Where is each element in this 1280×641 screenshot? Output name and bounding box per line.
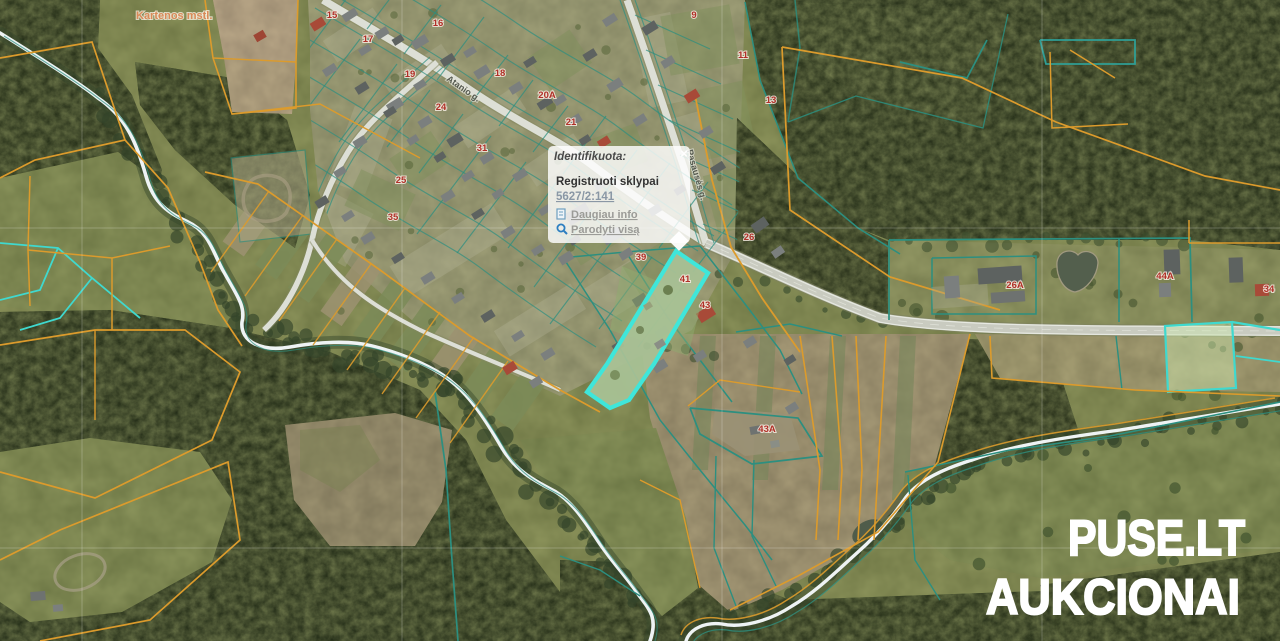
svg-text:11: 11 bbox=[738, 50, 749, 61]
svg-text:20A: 20A bbox=[538, 90, 556, 101]
svg-text:9: 9 bbox=[691, 10, 696, 21]
svg-text:18: 18 bbox=[495, 68, 506, 79]
svg-text:AUKCIONAI: AUKCIONAI bbox=[986, 569, 1240, 625]
svg-text:25: 25 bbox=[396, 175, 407, 186]
svg-text:16: 16 bbox=[433, 18, 444, 29]
svg-text:41: 41 bbox=[680, 274, 691, 285]
svg-text:PUSE.LT: PUSE.LT bbox=[1068, 510, 1245, 566]
svg-text:43A: 43A bbox=[758, 424, 776, 435]
svg-text:Kartenos mstl.: Kartenos mstl. bbox=[136, 10, 212, 22]
svg-text:×: × bbox=[680, 146, 688, 161]
svg-text:13: 13 bbox=[766, 95, 777, 106]
svg-text:35: 35 bbox=[388, 212, 399, 223]
svg-text:Registruoti sklypai: Registruoti sklypai bbox=[556, 176, 659, 188]
svg-text:17: 17 bbox=[363, 34, 374, 45]
svg-text:34: 34 bbox=[1264, 284, 1275, 295]
svg-text:26: 26 bbox=[744, 232, 755, 243]
svg-text:24: 24 bbox=[436, 102, 447, 113]
svg-text:Parodyti visą: Parodyti visą bbox=[571, 224, 640, 236]
svg-text:43: 43 bbox=[700, 300, 711, 311]
svg-text:15: 15 bbox=[327, 10, 338, 21]
svg-text:5627/2:141: 5627/2:141 bbox=[556, 191, 615, 203]
svg-text:Identifikuota:: Identifikuota: bbox=[554, 151, 626, 163]
svg-text:31: 31 bbox=[477, 143, 488, 154]
svg-text:19: 19 bbox=[405, 69, 416, 80]
svg-text:Daugiau info: Daugiau info bbox=[571, 209, 638, 221]
svg-text:39: 39 bbox=[636, 252, 647, 263]
svg-text:21: 21 bbox=[566, 117, 577, 128]
svg-text:44A: 44A bbox=[1156, 271, 1174, 282]
svg-text:26A: 26A bbox=[1006, 280, 1024, 291]
